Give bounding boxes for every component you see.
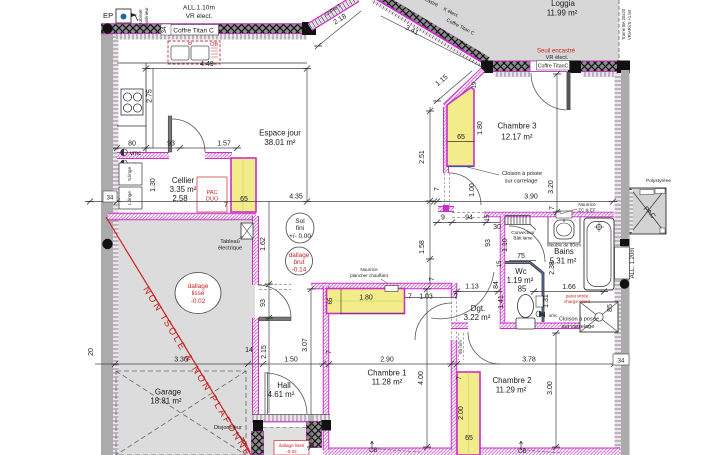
svg-text:2.75: 2.75 bbox=[147, 89, 154, 103]
svg-text:Loggia: Loggia bbox=[551, 0, 575, 8]
svg-text:ALL.1.10m: ALL.1.10m bbox=[183, 5, 215, 12]
svg-text:9: 9 bbox=[441, 215, 445, 222]
svg-text:11.99 m²: 11.99 m² bbox=[547, 9, 578, 18]
svg-text:OB: OB bbox=[210, 42, 218, 48]
svg-text:1.80: 1.80 bbox=[359, 295, 373, 302]
svg-text:1.10: 1.10 bbox=[502, 238, 509, 252]
svg-text:Cellier: Cellier bbox=[172, 176, 195, 185]
svg-text:12.17 m²: 12.17 m² bbox=[501, 133, 533, 142]
svg-text:93 mm: 93 mm bbox=[458, 340, 463, 354]
svg-text:1.30: 1.30 bbox=[150, 178, 157, 192]
svg-text:3.07: 3.07 bbox=[302, 338, 309, 352]
svg-text:38.01 m²: 38.01 m² bbox=[264, 138, 296, 147]
svg-text:1.00: 1.00 bbox=[469, 183, 476, 197]
svg-text:93: 93 bbox=[167, 141, 175, 148]
svg-text:3.20: 3.20 bbox=[548, 180, 555, 194]
svg-text:7: 7 bbox=[224, 202, 228, 209]
svg-text:65: 65 bbox=[240, 196, 248, 203]
svg-text:Bains: Bains bbox=[554, 247, 574, 256]
svg-text:1.80: 1.80 bbox=[477, 121, 484, 135]
svg-text:ZC & EF: ZC & EF bbox=[578, 208, 596, 213]
svg-text:lissé: lissé bbox=[192, 290, 205, 297]
svg-text:11.29 m²: 11.29 m² bbox=[496, 386, 527, 395]
svg-text:vmc: vmc bbox=[549, 313, 558, 318]
svg-text:1.31: 1.31 bbox=[543, 294, 550, 308]
svg-text:15: 15 bbox=[497, 260, 503, 267]
svg-text:Cloison à posée: Cloison à posée bbox=[502, 171, 542, 177]
svg-text:EP: EP bbox=[103, 11, 113, 20]
svg-text:Tableau: Tableau bbox=[220, 239, 240, 245]
svg-text:7: 7 bbox=[434, 187, 441, 191]
svg-text:Espace jour: Espace jour bbox=[259, 129, 301, 138]
svg-text:dallage: dallage bbox=[289, 252, 310, 259]
svg-text:7: 7 bbox=[429, 277, 436, 281]
svg-text:2.90: 2.90 bbox=[380, 357, 394, 364]
svg-text:84: 84 bbox=[493, 281, 500, 289]
svg-text:4.00: 4.00 bbox=[418, 371, 425, 385]
svg-text:93: 93 bbox=[260, 299, 267, 307]
svg-text:15: 15 bbox=[485, 214, 491, 221]
svg-text:3.90: 3.90 bbox=[524, 194, 538, 201]
svg-text:Seuil encastré: Seuil encastré bbox=[537, 49, 576, 55]
svg-text:34: 34 bbox=[107, 196, 114, 202]
svg-text:3.22 m²: 3.22 m² bbox=[464, 313, 491, 322]
svg-text:1.41: 1.41 bbox=[498, 295, 505, 309]
svg-text:-0.14: -0.14 bbox=[292, 267, 307, 274]
svg-text:85: 85 bbox=[607, 304, 614, 312]
svg-text:fini: fini bbox=[296, 225, 304, 232]
svg-text:sur carrelage: sur carrelage bbox=[562, 324, 595, 330]
svg-text:L.linge: L.linge bbox=[127, 191, 132, 205]
svg-text:Trame BA 20x20: Trame BA 20x20 bbox=[621, 8, 626, 40]
svg-text:OB: OB bbox=[369, 448, 378, 454]
svg-text:Sol: Sol bbox=[295, 218, 304, 225]
svg-text:paroi vitrée: paroi vitrée bbox=[566, 294, 589, 299]
svg-text:charge client: charge client bbox=[564, 299, 591, 304]
svg-text:2.15: 2.15 bbox=[261, 345, 268, 359]
svg-text:20: 20 bbox=[88, 348, 95, 356]
svg-text:plancher chauffant: plancher chauffant bbox=[350, 273, 388, 278]
svg-text:dallage lissé: dallage lissé bbox=[279, 443, 305, 448]
svg-text:VR/ARVS +1.50: VR/ARVS +1.50 bbox=[627, 9, 632, 40]
svg-text:-0.02: -0.02 bbox=[191, 298, 206, 305]
svg-text:-0.02: -0.02 bbox=[286, 449, 297, 454]
svg-text:14: 14 bbox=[245, 347, 253, 354]
svg-text:1.66: 1.66 bbox=[562, 284, 576, 291]
svg-text:Nourrice: Nourrice bbox=[360, 267, 378, 272]
svg-text:94: 94 bbox=[465, 215, 473, 222]
svg-text:Chambre 1: Chambre 1 bbox=[367, 369, 406, 378]
svg-text:30: 30 bbox=[493, 224, 501, 231]
svg-text:1.57: 1.57 bbox=[217, 141, 231, 148]
svg-text:Bâti lame: Bâti lame bbox=[513, 236, 533, 241]
svg-text:3.78: 3.78 bbox=[522, 357, 536, 364]
svg-text:S.linge: S.linge bbox=[127, 167, 132, 181]
svg-text:3.00: 3.00 bbox=[547, 381, 554, 395]
svg-text:4.35: 4.35 bbox=[289, 194, 303, 201]
svg-text:1.50: 1.50 bbox=[284, 357, 298, 364]
svg-text:Dgt.: Dgt. bbox=[471, 304, 485, 313]
svg-text:3.35 m²: 3.35 m² bbox=[170, 185, 197, 194]
svg-text:Coffre Titan C: Coffre Titan C bbox=[173, 27, 214, 34]
svg-text:+/- 0.00: +/- 0.00 bbox=[289, 233, 311, 240]
svg-text:3.30: 3.30 bbox=[174, 357, 188, 364]
svg-text:Polystyrène: Polystyrène bbox=[646, 178, 671, 184]
svg-text:PAC: PAC bbox=[206, 190, 217, 196]
svg-text:2.51: 2.51 bbox=[419, 150, 426, 164]
svg-text:34: 34 bbox=[162, 26, 168, 33]
svg-text:1.58: 1.58 bbox=[419, 240, 426, 254]
svg-text:extérieur: extérieur bbox=[144, 7, 150, 26]
svg-text:1.03: 1.03 bbox=[419, 294, 433, 301]
svg-text:2.00: 2.00 bbox=[458, 406, 465, 420]
svg-text:Wc: Wc bbox=[515, 267, 526, 276]
svg-text:19: 19 bbox=[472, 81, 478, 88]
svg-text:7: 7 bbox=[326, 350, 333, 354]
svg-text:11.28 m²: 11.28 m² bbox=[372, 378, 403, 387]
svg-text:vmc: vmc bbox=[130, 151, 141, 157]
svg-text:7: 7 bbox=[408, 294, 412, 301]
svg-text:18.81 m²: 18.81 m² bbox=[150, 397, 182, 406]
svg-text:Hall: Hall bbox=[277, 381, 291, 390]
svg-text:sur carrelage: sur carrelage bbox=[505, 179, 538, 185]
svg-text:Nourrice: Nourrice bbox=[578, 202, 596, 207]
svg-text:5.31 m²: 5.31 m² bbox=[550, 257, 577, 266]
svg-text:OB: OB bbox=[518, 449, 527, 455]
svg-text:7: 7 bbox=[549, 206, 556, 210]
svg-text:brut: brut bbox=[293, 259, 304, 266]
svg-text:ALL. 1.20m: ALL. 1.20m bbox=[630, 248, 636, 279]
svg-text:75: 75 bbox=[517, 253, 525, 260]
svg-text:dallage: dallage bbox=[188, 283, 209, 290]
svg-text:Chambre 2: Chambre 2 bbox=[492, 376, 531, 385]
svg-text:Convecteur: Convecteur bbox=[511, 230, 535, 235]
svg-text:Garage: Garage bbox=[155, 388, 182, 397]
svg-text:85: 85 bbox=[518, 285, 527, 294]
svg-text:Disjoncteur: Disjoncteur bbox=[214, 425, 242, 431]
svg-text:1.13: 1.13 bbox=[465, 284, 479, 291]
svg-text:Robinet: Robinet bbox=[138, 9, 144, 26]
svg-text:65: 65 bbox=[465, 435, 473, 442]
svg-text:34: 34 bbox=[618, 359, 625, 365]
svg-text:65: 65 bbox=[457, 134, 465, 141]
svg-text:4.61 m²: 4.61 m² bbox=[268, 390, 295, 399]
svg-text:2.58: 2.58 bbox=[172, 194, 188, 203]
svg-text:Chambre 3: Chambre 3 bbox=[497, 122, 537, 131]
svg-text:4.49: 4.49 bbox=[200, 61, 214, 68]
svg-text:Coffre TitanC: Coffre TitanC bbox=[538, 64, 569, 70]
svg-text:VR élect.: VR élect. bbox=[546, 55, 569, 61]
svg-text:Cloison à posée: Cloison à posée bbox=[559, 317, 599, 323]
svg-text:VR élect.: VR élect. bbox=[186, 13, 213, 20]
svg-text:65: 65 bbox=[328, 297, 334, 304]
svg-text:80: 80 bbox=[128, 141, 136, 148]
svg-text:7: 7 bbox=[454, 294, 458, 301]
svg-text:électrique: électrique bbox=[218, 246, 242, 252]
svg-text:1.62: 1.62 bbox=[260, 237, 267, 251]
svg-text:93: 93 bbox=[485, 239, 492, 247]
